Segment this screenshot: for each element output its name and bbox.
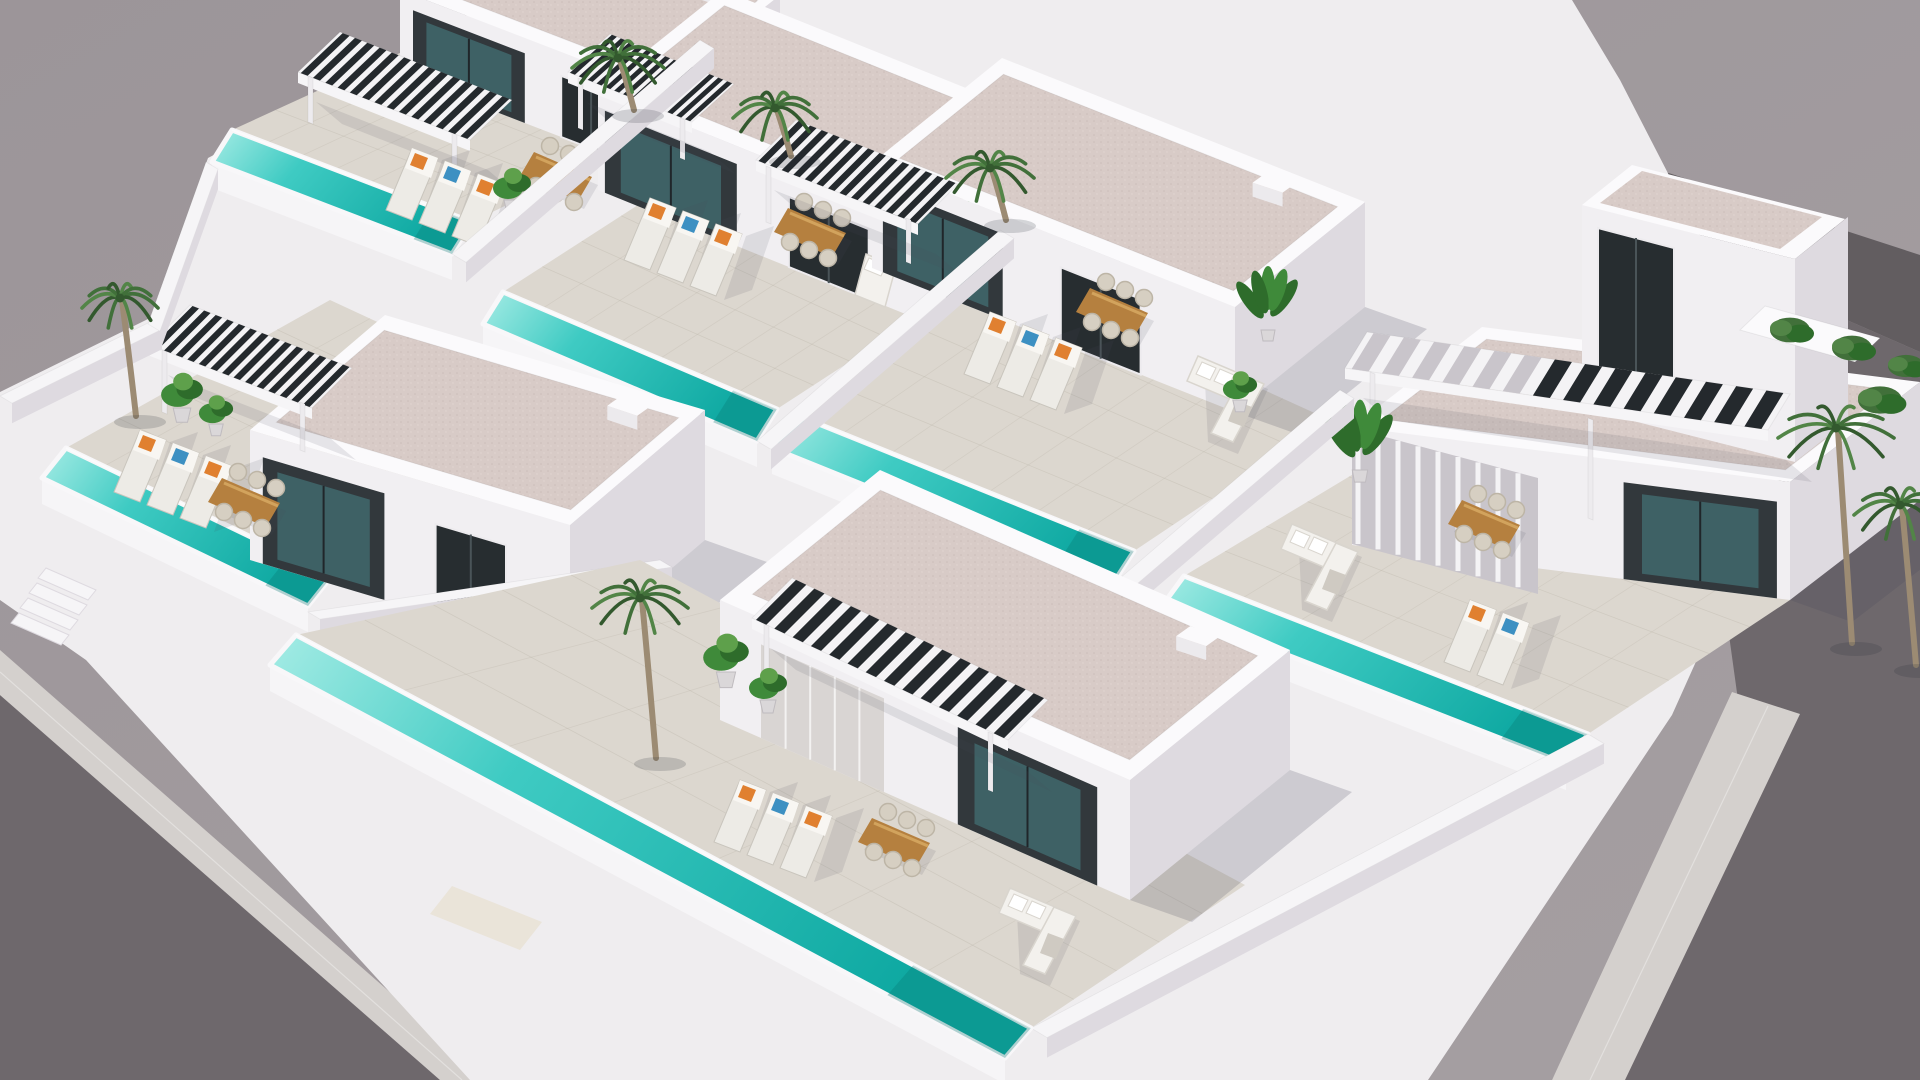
pergola-column	[578, 78, 583, 130]
palm-shadow	[984, 219, 1036, 233]
dining-chair	[918, 820, 935, 837]
dining-chair	[268, 480, 285, 497]
plant-foliage	[209, 395, 225, 409]
plant-foliage	[716, 634, 738, 653]
dining-chair	[1508, 502, 1525, 519]
dining-chair	[249, 472, 266, 489]
plant-pot	[1261, 330, 1275, 341]
plant-foliage	[1233, 371, 1249, 385]
palm-shadow	[769, 155, 821, 169]
dining-chair	[782, 234, 799, 251]
pergola-column	[766, 166, 771, 224]
render-canvas	[0, 0, 1920, 1080]
bush-foliage	[1888, 357, 1908, 371]
palm-crown	[614, 54, 623, 63]
dining-chair	[566, 194, 583, 211]
pergola-column	[906, 218, 911, 264]
dining-chair	[235, 512, 252, 529]
plant-foliage	[173, 373, 193, 391]
dining-chair	[1084, 314, 1101, 331]
pergola-column	[308, 76, 313, 124]
plant-foliage	[504, 168, 522, 184]
dining-chair	[820, 250, 837, 267]
render-image	[0, 0, 1920, 1080]
dining-chair	[899, 812, 916, 829]
plant-pot	[173, 408, 191, 422]
palm-crown	[636, 594, 645, 603]
dining-chair	[1103, 322, 1120, 339]
dining-chair	[885, 852, 902, 869]
dining-chair	[230, 464, 247, 481]
plant-pot	[209, 424, 223, 436]
bush-foliage	[1770, 320, 1792, 336]
dining-chair	[1456, 526, 1473, 543]
palm-crown	[1832, 424, 1841, 433]
palm-crown	[986, 164, 995, 173]
plant-pot	[716, 672, 735, 688]
palm-crown	[771, 104, 780, 113]
bush-foliage	[1832, 338, 1854, 354]
dining-chair	[216, 504, 233, 521]
palm-crown	[1896, 501, 1905, 510]
palm-shadow	[1830, 642, 1882, 656]
dining-chair	[1122, 330, 1139, 347]
plant-pot	[1233, 400, 1247, 412]
palm-shadow	[634, 757, 686, 771]
dining-chair	[866, 844, 883, 861]
pergola-column	[680, 118, 685, 160]
dining-chair	[542, 138, 559, 155]
dining-chair	[1475, 534, 1492, 551]
dining-chair	[801, 242, 818, 259]
dining-chair	[1494, 542, 1511, 559]
palm-shadow	[114, 415, 166, 429]
plant-pot	[760, 700, 776, 713]
dining-chair	[1136, 290, 1153, 307]
plant-pot	[1352, 470, 1367, 482]
bush-foliage	[1858, 389, 1882, 407]
palm-crown	[116, 294, 125, 303]
plant-foliage	[760, 668, 778, 684]
dining-chair	[1098, 274, 1115, 291]
dining-chair	[1470, 486, 1487, 503]
dining-chair	[1117, 282, 1134, 299]
dining-chair	[254, 520, 271, 537]
dining-chair	[904, 860, 921, 877]
dining-chair	[880, 804, 897, 821]
dining-chair	[1489, 494, 1506, 511]
pergola-column	[162, 350, 167, 414]
palm-shadow	[612, 109, 664, 123]
